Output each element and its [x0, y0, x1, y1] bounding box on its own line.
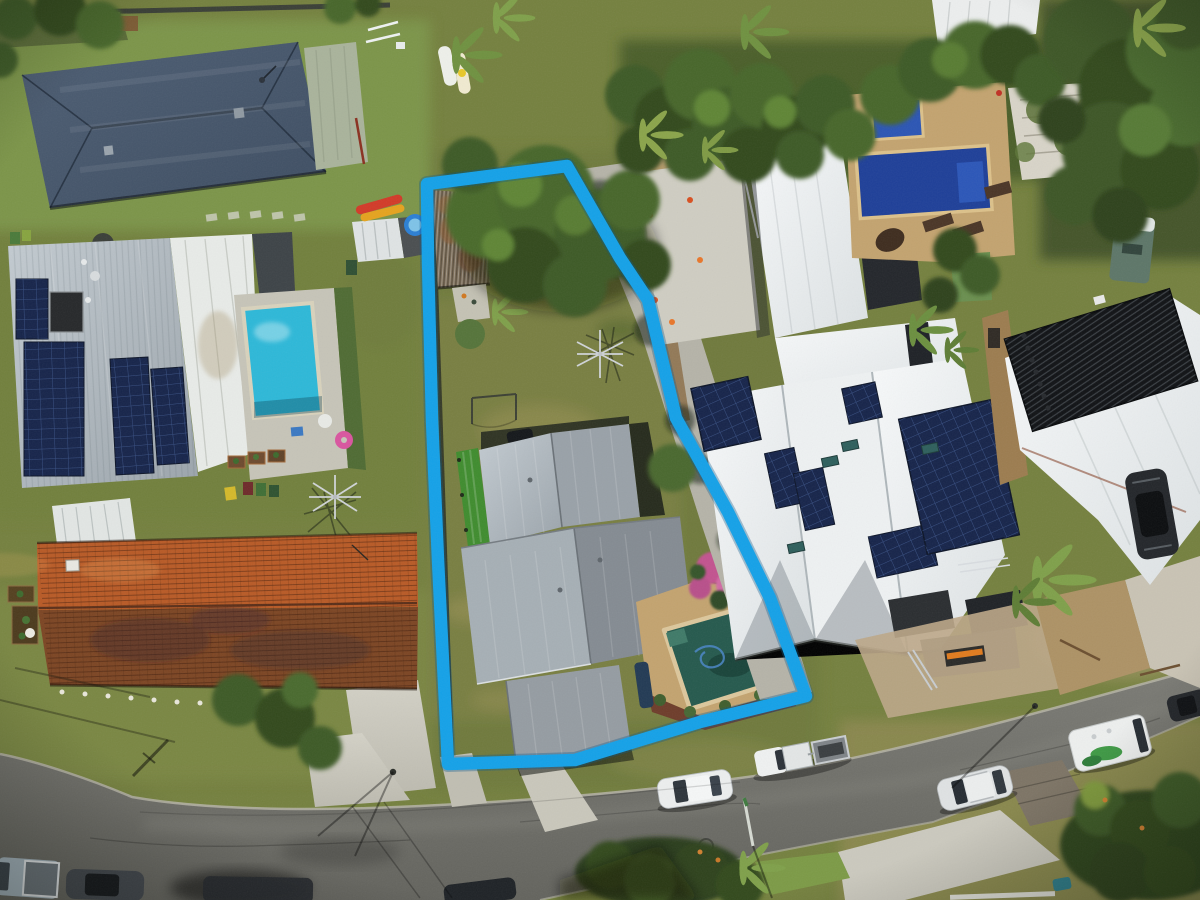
- aerial-photo-canvas: [0, 0, 1200, 900]
- vignette: [0, 0, 1200, 900]
- aerial-photo: [0, 0, 1200, 900]
